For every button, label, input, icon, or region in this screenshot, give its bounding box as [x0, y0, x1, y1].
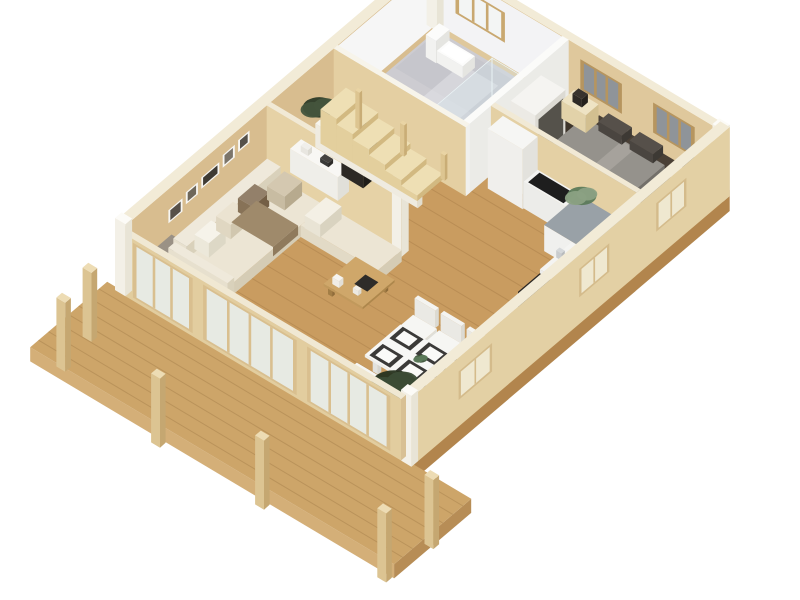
- floor-plan-3d-render: [0, 0, 800, 600]
- stair-newel-3: [441, 151, 448, 181]
- deck-post-1: [83, 263, 98, 342]
- deck-post-2: [56, 293, 71, 372]
- west-corner-trim: [115, 212, 132, 296]
- stair-newel-2: [400, 121, 407, 157]
- deck-post-3: [151, 369, 166, 448]
- deck-post-4: [255, 431, 270, 510]
- deck-post-5: [377, 503, 392, 582]
- stair-newel-1: [355, 88, 362, 130]
- deck-post-6: [425, 470, 440, 549]
- cabin-floor-plan-svg: [0, 0, 800, 600]
